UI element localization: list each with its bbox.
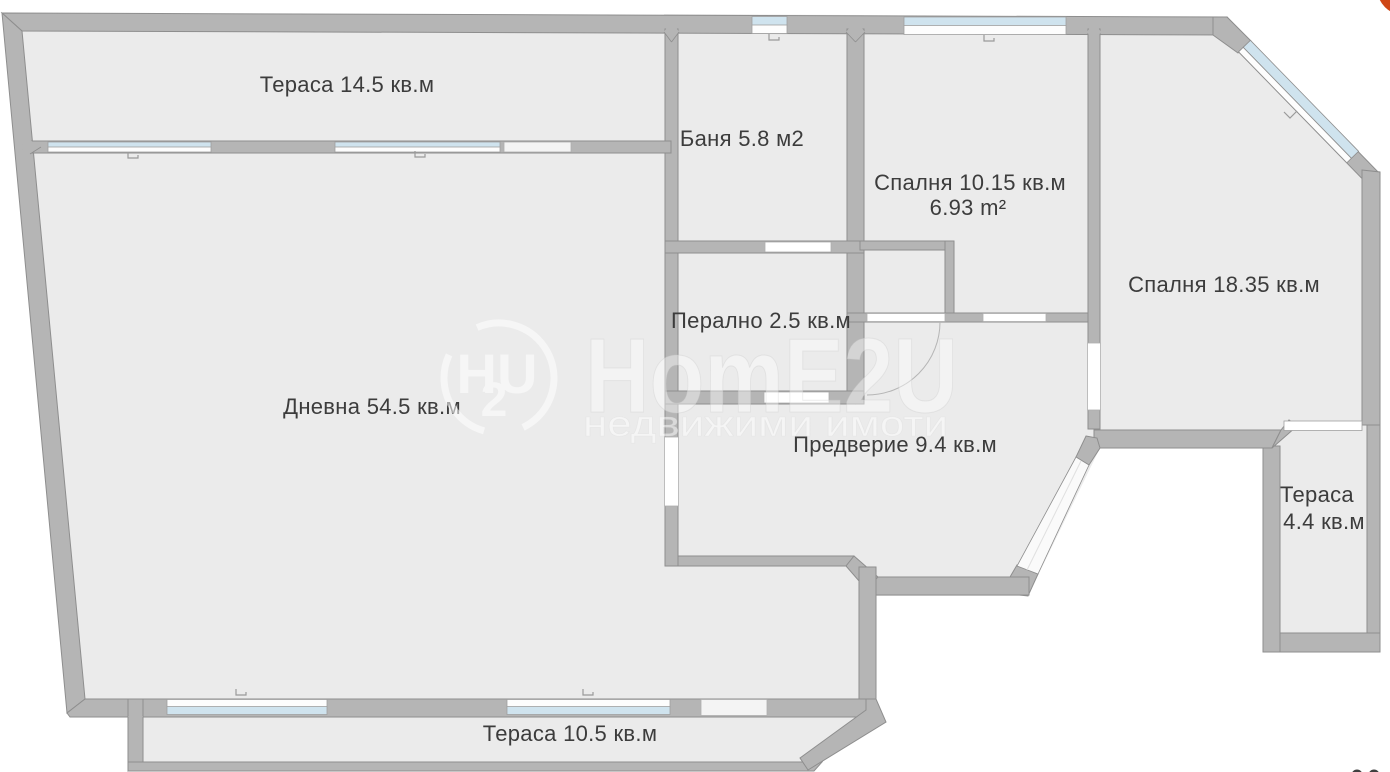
svg-text:недвижими имоти: недвижими имоти (583, 403, 948, 444)
svg-text:Дневна 54.5 кв.м: Дневна 54.5 кв.м (283, 394, 461, 419)
svg-text:Тераса 14.5 кв.м: Тераса 14.5 кв.м (260, 72, 435, 97)
svg-text:6.93 m²: 6.93 m² (930, 195, 1007, 220)
svg-text:Тераса: Тераса (1280, 482, 1354, 507)
svg-text:Спалня 18.35 кв.м: Спалня 18.35 кв.м (1128, 272, 1320, 297)
svg-text:Спалня 10.15 кв.м: Спалня 10.15 кв.м (874, 170, 1066, 195)
svg-text:Тераса 10.5 кв.м: Тераса 10.5 кв.м (483, 721, 658, 746)
svg-text:2: 2 (481, 374, 508, 427)
svg-text:Баня 5.8 м2: Баня 5.8 м2 (680, 126, 804, 151)
svg-text:4.4 кв.м: 4.4 кв.м (1283, 509, 1365, 534)
